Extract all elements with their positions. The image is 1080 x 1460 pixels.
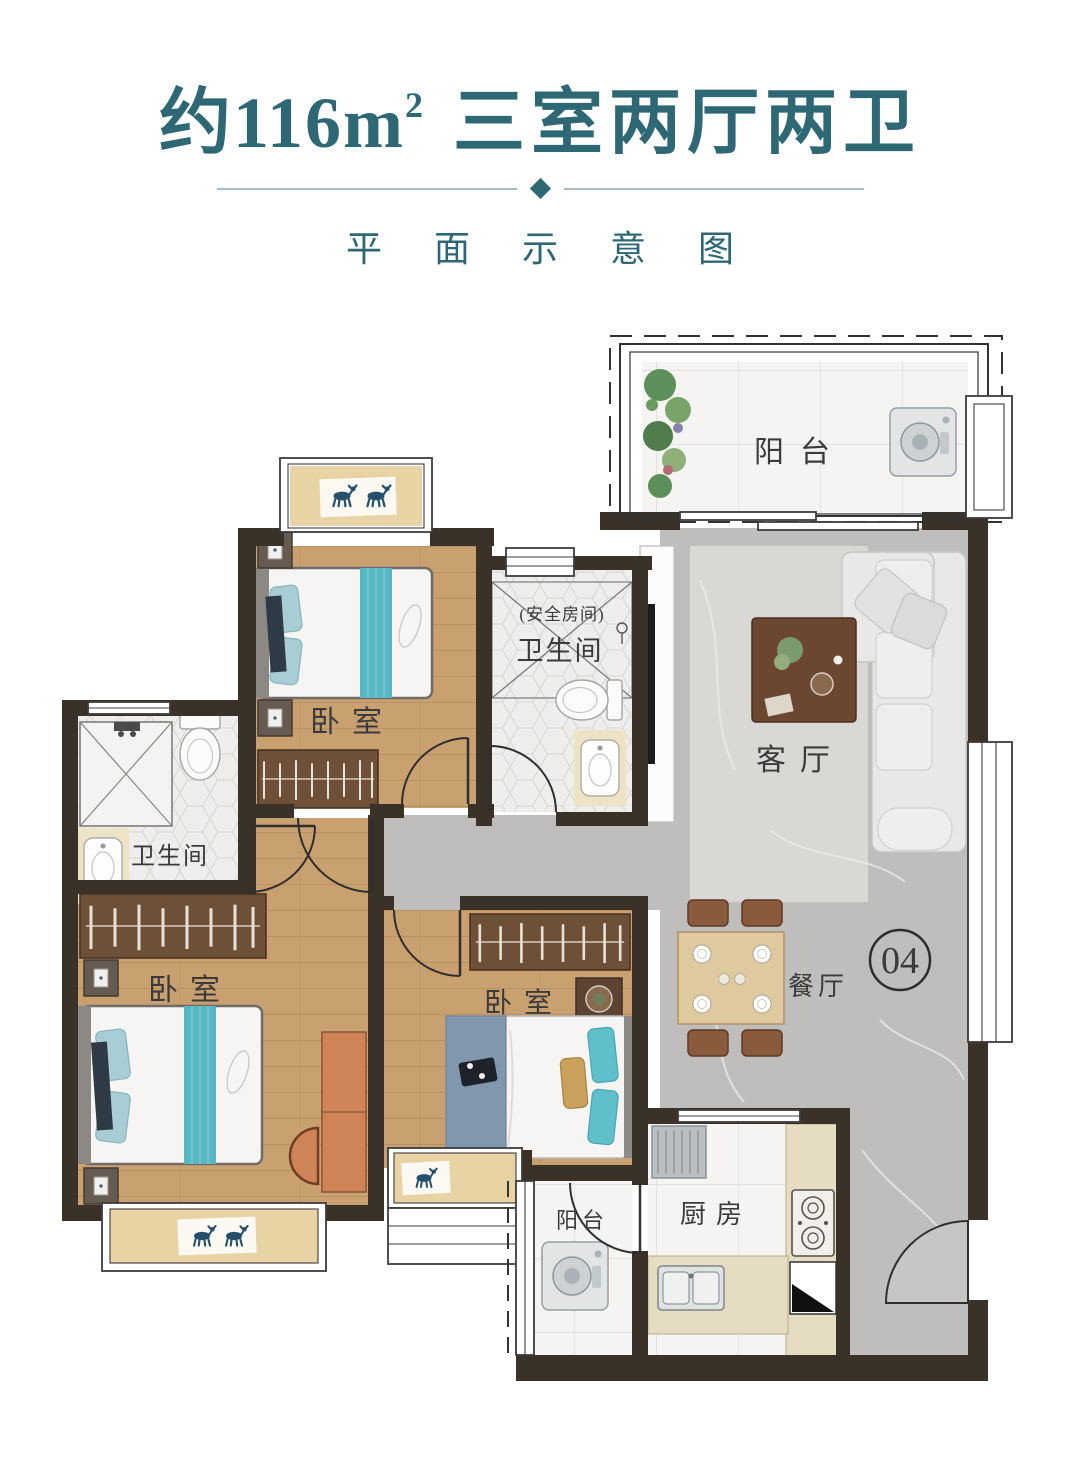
wardrobe-mid [470, 914, 630, 970]
room-label-bedroom-mid: 卧室 [484, 987, 564, 1019]
shower [80, 722, 172, 826]
fridge [652, 1126, 706, 1178]
wardrobe-top [258, 750, 378, 808]
room-label-bath-left: 卫生间 [131, 843, 209, 870]
bath-center-shelf [506, 548, 574, 576]
bedroom-top-bay-window [280, 458, 432, 532]
nightstand [84, 1168, 118, 1204]
kitchen-board [790, 1262, 836, 1314]
desk [322, 1032, 366, 1192]
sink-center [574, 730, 626, 806]
living-bay-window [968, 742, 1012, 1042]
floorplan-svg: 阳台 卧室 (安全房间) 卫生间 卫生间 客厅 卧室 卧室 餐厅 04 厨房 阳… [0, 0, 1080, 1460]
tv [648, 604, 655, 764]
coffee-table [752, 618, 856, 722]
bed-top [256, 568, 432, 698]
washing-machine-top [890, 408, 956, 476]
bed-mid [446, 1016, 636, 1158]
unit-number: 04 [881, 940, 919, 982]
bath-left-window [88, 702, 170, 714]
room-label-dining: 餐厅 [788, 972, 848, 1001]
bedroom-left-bay-window [102, 1203, 326, 1271]
kitchen-sink [658, 1266, 724, 1310]
room-label-bath-center: 卫生间 [517, 636, 604, 666]
room-label-balcony-top: 阳台 [754, 436, 846, 469]
wardrobe-left [80, 894, 266, 958]
room-label-kitchen: 厨房 [680, 1200, 752, 1229]
bed-left [78, 1006, 262, 1164]
kitchen-window [678, 1110, 800, 1122]
balcony-right-bay-window [966, 396, 1012, 518]
room-label-balcony-bottom: 阳台 [556, 1208, 608, 1233]
toilet-left [180, 714, 220, 780]
bedroom-mid-bay-window [388, 1148, 522, 1264]
side-table [576, 978, 622, 1020]
nightstand [258, 700, 292, 736]
room-label-bath-center-note: (安全房间) [519, 605, 604, 624]
floorplan-page: 约116m2三室两厅两卫 平面示意图 [0, 0, 1080, 1460]
room-label-bedroom-left: 卧室 [148, 974, 232, 1007]
washing-machine-bottom [542, 1242, 608, 1310]
hallway-floor [375, 815, 660, 910]
room-label-living: 客厅 [756, 744, 844, 777]
room-label-bedroom-top: 卧室 [310, 706, 394, 739]
stove [792, 1190, 834, 1256]
toilet-center [556, 680, 622, 720]
nightstand [84, 960, 118, 996]
